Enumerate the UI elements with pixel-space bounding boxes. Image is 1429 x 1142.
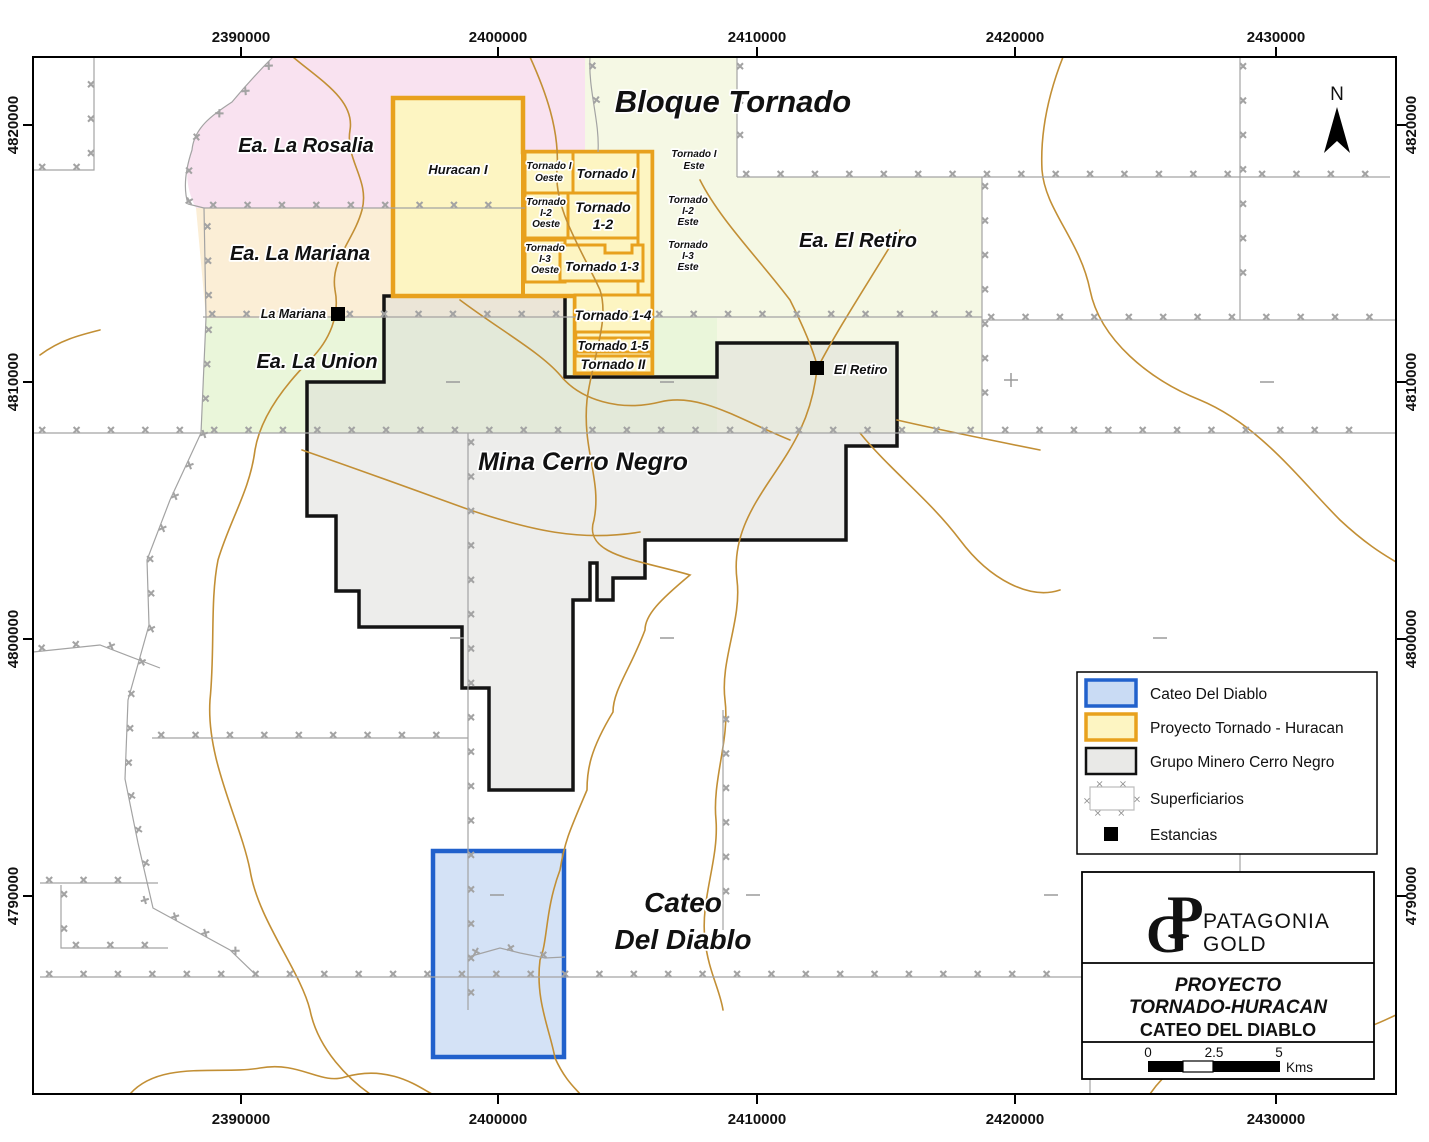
axis-label: 2390000 xyxy=(212,29,270,46)
superficiario-cross-marks: ××××××× xyxy=(1237,62,1248,303)
axis-labels-bottom: 2390000 2400000 2410000 2420000 2430000 xyxy=(212,1111,1305,1128)
superficiario-cross-marks: ××××××××××××××××××× xyxy=(742,169,1395,180)
superficiario-cross-marks: ××××××××××××××××× xyxy=(465,438,476,1023)
legend-item-label: Proyecto Tornado - Huracan xyxy=(1150,720,1344,737)
superficiario-cross-marks: ×××××××××××× xyxy=(987,312,1400,323)
legend-swatch-cerro xyxy=(1086,748,1136,774)
label-el-retiro: El Retiro xyxy=(834,362,888,377)
legend-item-label: Estancias xyxy=(1150,827,1217,844)
superficiario-cross-marks: ××××××× xyxy=(979,182,990,423)
stream xyxy=(130,1067,432,1094)
label-tornado-13: Tornado 1-3 xyxy=(565,259,640,274)
logo-brand-line2: GOLD xyxy=(1203,933,1267,956)
scale-bar-segment xyxy=(1148,1061,1183,1072)
logo-brand-line1: PATAGONIA xyxy=(1203,910,1330,933)
axis-label: 2430000 xyxy=(1247,29,1305,46)
scale-tick-label: 2.5 xyxy=(1205,1045,1224,1060)
axis-labels-left: 4820000 4810000 4800000 4790000 xyxy=(5,96,22,925)
map-page: ××××××××××××××××××××××××××××××××××××××××… xyxy=(0,0,1429,1142)
north-label: N xyxy=(1330,84,1344,105)
axis-label: 2430000 xyxy=(1247,1111,1305,1128)
title-block: P G PATAGONIA GOLD PROYECTO TORNADO-HURA… xyxy=(1082,872,1374,1079)
axis-labels-top: 2390000 2400000 2410000 2420000 2430000 xyxy=(212,29,1305,46)
axis-label: 2420000 xyxy=(986,1111,1044,1128)
title-line2: TORNADO-HURACAN xyxy=(1129,997,1328,1018)
axis-label: 2420000 xyxy=(986,29,1044,46)
north-arrow: N xyxy=(1324,84,1350,153)
superficiario-line xyxy=(33,57,94,170)
stream xyxy=(860,433,1060,593)
label-ea-la-mariana: Ea. La Mariana xyxy=(230,243,370,265)
scale-unit-label: Kms xyxy=(1286,1060,1313,1075)
legend-swatch-cateo xyxy=(1086,680,1136,706)
axis-label: 2410000 xyxy=(728,29,786,46)
axis-labels-right: 4820000 4810000 4800000 4790000 xyxy=(1403,96,1420,925)
label-tornado-ii: Tornado II xyxy=(581,357,646,372)
scale-tick-label: 0 xyxy=(1144,1045,1152,1060)
axis-label: 4790000 xyxy=(1403,867,1420,925)
axis-label: 4820000 xyxy=(1403,96,1420,154)
axis-label: 4810000 xyxy=(1403,353,1420,411)
stream xyxy=(40,330,100,355)
label-ea-el-retiro: Ea. El Retiro xyxy=(799,230,917,252)
label-tornado-15: Tornado 1-5 xyxy=(577,339,649,353)
label-tornado-14: Tornado 1-4 xyxy=(575,308,652,323)
estancia-point-el-retiro xyxy=(810,361,824,375)
superficiario-cross-marks: ××××××××× xyxy=(157,730,467,741)
superficiario-cross-marks: ××××××××× xyxy=(209,200,519,211)
legend-item-label: Superficiarios xyxy=(1150,791,1244,808)
map-canvas: ××××××××××××××××××××××××××××××××××××××××… xyxy=(0,0,1429,1142)
superficiario-cross-marks: ××× xyxy=(37,636,141,662)
superficiario-line xyxy=(61,885,168,948)
axis-label: 4810000 xyxy=(5,353,22,411)
legend-swatch-proyecto xyxy=(1086,714,1136,740)
label-cateo-line1: Cateo xyxy=(644,887,722,918)
axis-label: 2390000 xyxy=(212,1111,270,1128)
label-mina-cerro-negro: Mina Cerro Negro xyxy=(478,448,688,476)
legend-item-label: Cateo Del Diablo xyxy=(1150,686,1267,703)
superficiario-cross-marks: ××××× xyxy=(58,890,175,959)
axis-label: 2410000 xyxy=(728,1111,786,1128)
title-line1: PROYECTO xyxy=(1175,975,1282,996)
label-cateo-line2: Del Diablo xyxy=(615,924,752,955)
axis-label: 2400000 xyxy=(469,1111,527,1128)
logo-g-glyph: G xyxy=(1146,904,1188,964)
label-la-mariana: La Mariana xyxy=(261,307,326,321)
legend-item-label: Grupo Minero Cerro Negro xyxy=(1150,754,1334,771)
superficiario-cross-marks: ××× xyxy=(45,875,148,886)
label-ea-la-union: Ea. La Union xyxy=(256,351,377,373)
estancia-point-la-mariana xyxy=(331,307,345,321)
axis-label: 4820000 xyxy=(5,96,22,154)
label-tornado-i: Tornado I xyxy=(577,166,636,181)
axis-label: 4800000 xyxy=(1403,610,1420,668)
axis-label: 2400000 xyxy=(469,29,527,46)
scale-bar-segment xyxy=(1183,1061,1213,1072)
label-bloque-tornado: Bloque Tornado xyxy=(615,84,852,119)
north-arrow-icon xyxy=(1324,107,1350,153)
axis-label: 4800000 xyxy=(5,610,22,668)
scale-tick-label: 5 xyxy=(1275,1045,1283,1060)
title-line3: CATEO DEL DIABLO xyxy=(1140,1020,1316,1040)
legend: Cateo Del Diablo Proyecto Tornado - Hura… xyxy=(1077,672,1377,854)
scale-bar-segment xyxy=(1213,1061,1280,1072)
label-huracan-i: Huracan I xyxy=(428,162,488,177)
label-ea-la-rosalia: Ea. La Rosalia xyxy=(238,135,374,157)
legend-swatch-estancias xyxy=(1104,827,1118,841)
axis-label: 4790000 xyxy=(5,867,22,925)
superficiario-cross-marks: ××××× xyxy=(38,54,107,173)
